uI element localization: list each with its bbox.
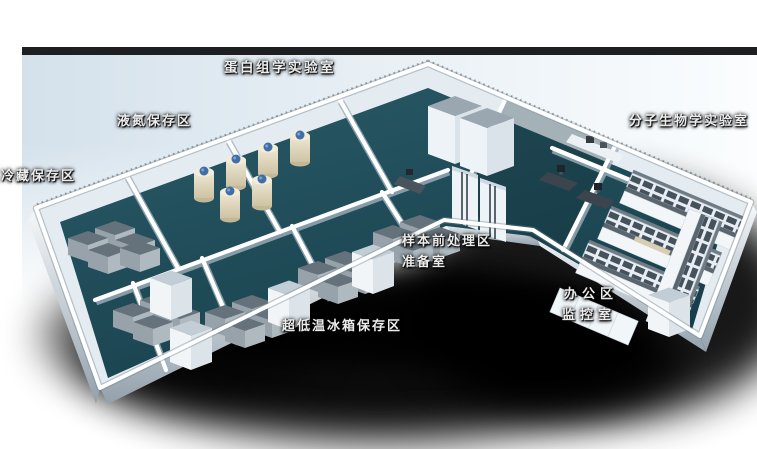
label-monitoring-room: 监控室 — [562, 304, 616, 323]
label-cold-storage: 冷藏保存区 — [1, 165, 76, 184]
label-preparation-room: 准备室 — [402, 251, 447, 270]
label-ult-freezer-storage: 超低温冰箱保存区 — [282, 315, 402, 334]
label-proteomics-lab: 蛋白组学实验室 — [224, 56, 336, 76]
label-sample-pretreatment: 样本前处理区 — [402, 230, 492, 249]
lab-floorplan-illustration — [0, 0, 757, 449]
label-molecular-biology-lab: 分子生物学实验室 — [629, 110, 749, 129]
label-office-area: 办公区 — [564, 283, 618, 302]
lab-floorplan-figure: 蛋白组学实验室 液氮保存区 冷藏保存区 分子生物学实验室 样本前处理区 准备室 … — [0, 0, 757, 449]
label-liquid-nitrogen-storage: 液氮保存区 — [117, 110, 192, 129]
